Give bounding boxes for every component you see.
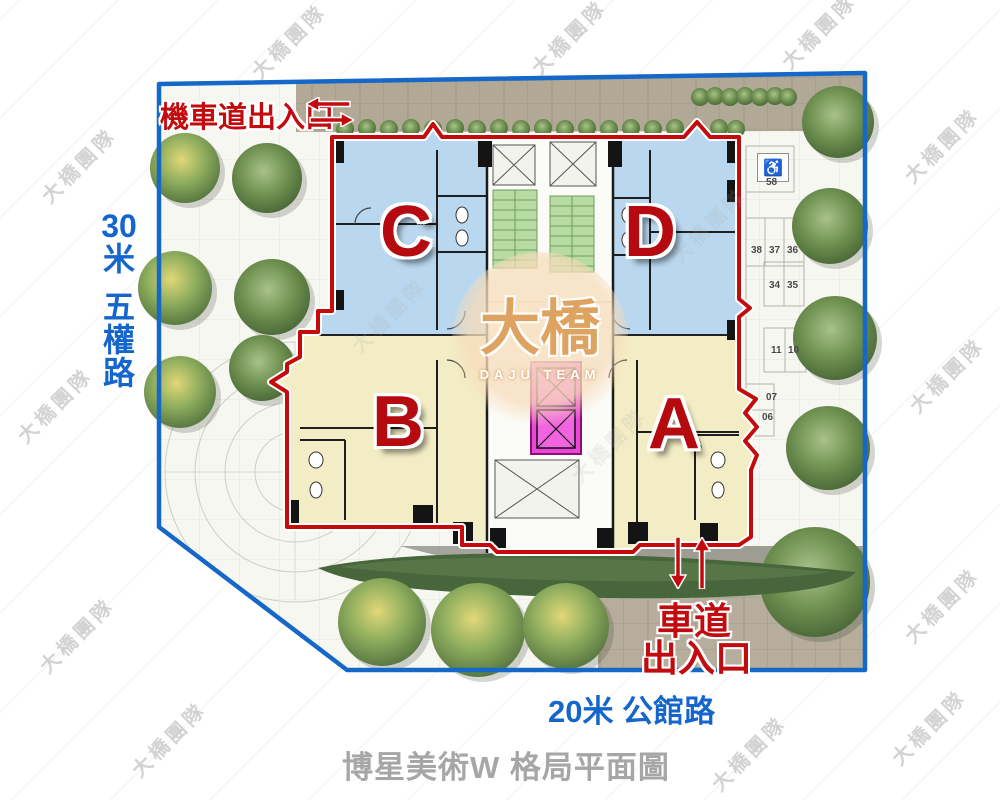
road-bottom-label: 20米 公館路 [548,686,715,731]
car-entrance-label-line2: 出入口 [641,628,752,682]
unit-d-label: D [624,196,676,268]
road-left-char: 米 [103,243,135,276]
unit-b-label: B [372,386,424,458]
road-left-char: 路 [103,357,135,390]
motorcycle-direction-arrows-icon [306,97,354,127]
parking-space-number: 35 [787,280,798,291]
daju-team-text: DAJU TEAM [480,367,601,382]
road-left-char: 30 [101,210,137,243]
site-plan-canvas: 大橋團隊 大橋團隊 大橋團隊 大橋團隊 大橋團隊 大橋團隊 大橋團隊 大橋團隊 … [0,0,1000,800]
parking-space-number: 34 [769,280,780,291]
parking-space-number: 58 [766,177,777,188]
parking-space-number: 07 [766,392,777,403]
parking-space-number: 10 [788,345,799,356]
parking-space-number: 38 [751,245,762,256]
unit-c-label: C [380,196,432,268]
parking-space-number: 37 [769,245,780,256]
road-left-label: 30 米 五 權 路 [94,210,144,389]
plan-title: 博星美術W 格局平面圖 [342,742,670,787]
unit-a-label: A [648,388,700,460]
car-direction-arrows-icon [668,537,714,589]
bushes-bottom [338,578,614,682]
parking-space-number: 06 [762,412,773,423]
daju-logo-text: 大橋 [480,299,600,359]
parking-space-number: 11 [771,345,782,356]
road-left-char: 五 [103,291,135,324]
road-left-char: 權 [103,324,135,357]
daju-team-watermark: 大橋 DAJU TEAM [452,252,628,428]
parking-space-number: 36 [787,245,798,256]
